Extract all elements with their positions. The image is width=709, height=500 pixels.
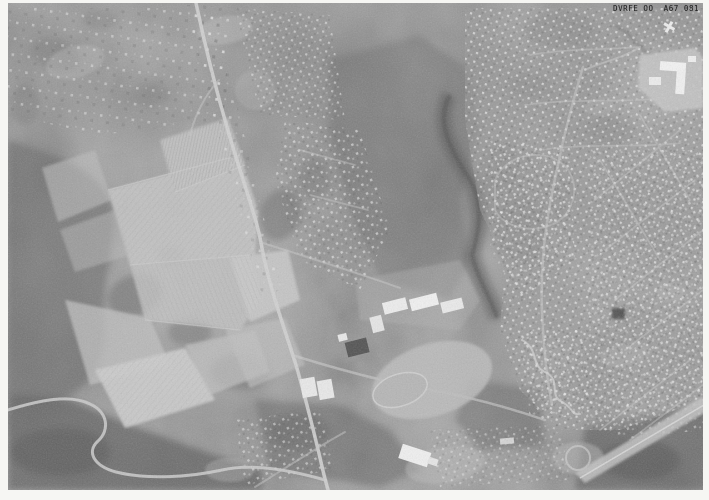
- film-grain-texture: [8, 3, 703, 490]
- aerial-photograph: [0, 0, 709, 500]
- aerial-photo-print: DVRFE OO A67 081: [0, 0, 709, 500]
- photo-frame-id-label: DVRFE OO A67 081: [613, 3, 707, 15]
